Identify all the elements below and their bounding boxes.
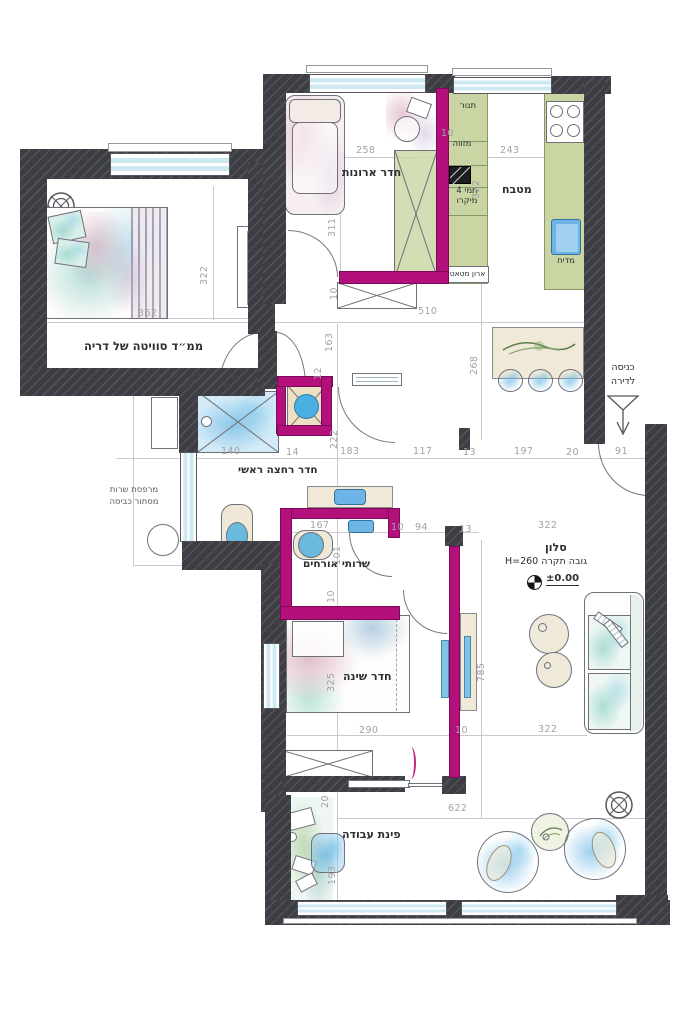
- dimension-label: 91: [615, 446, 628, 457]
- dimension-layer: 3623222583111010243322510163122682221401…: [0, 0, 683, 1024]
- dimension-label: 94: [415, 522, 428, 533]
- dimension-label: 20: [320, 795, 331, 808]
- dimension-label: 362: [138, 308, 157, 319]
- dimension-label: 140: [221, 446, 240, 457]
- dimension-label: 322: [199, 266, 210, 285]
- dimension-label: 10: [441, 128, 454, 139]
- dimension-label: 163: [324, 333, 335, 352]
- dimension-label: 311: [327, 218, 338, 237]
- dimension-label: 117: [413, 446, 432, 457]
- dimension-label: 510: [418, 306, 437, 317]
- dimension-label: 193: [327, 866, 338, 885]
- dimension-label: 10: [326, 590, 337, 603]
- dimension-label: 622: [448, 803, 467, 814]
- dimension-label: 167: [310, 520, 329, 531]
- dimension-label: 197: [514, 446, 533, 457]
- dimension-label: 322: [538, 520, 557, 531]
- dimension-label: 14: [286, 447, 299, 458]
- dimension-label: 243: [500, 145, 519, 156]
- dimension-label: 183: [340, 446, 359, 457]
- dimension-label: 12: [313, 367, 324, 380]
- dimension-label: 20: [566, 447, 579, 458]
- dimension-label: 222: [329, 430, 340, 449]
- dimension-label: 10: [455, 725, 468, 736]
- dimension-label: 10: [391, 522, 404, 533]
- dimension-label: 10: [329, 287, 340, 300]
- dimension-label: 322: [471, 180, 482, 199]
- dimension-label: 101: [332, 546, 343, 565]
- floor-plan: תנור מזווה תמי 4 מיקרו ארון מטאטא מדיח: [0, 0, 683, 1024]
- dimension-label: 268: [469, 356, 480, 375]
- dimension-label: 290: [359, 725, 378, 736]
- dimension-label: 13: [463, 447, 476, 458]
- dimension-label: 13: [459, 524, 472, 535]
- dimension-label: 325: [326, 673, 337, 692]
- dimension-label: 785: [476, 663, 487, 682]
- dimension-label: 258: [356, 145, 375, 156]
- dimension-label: 322: [538, 724, 557, 735]
